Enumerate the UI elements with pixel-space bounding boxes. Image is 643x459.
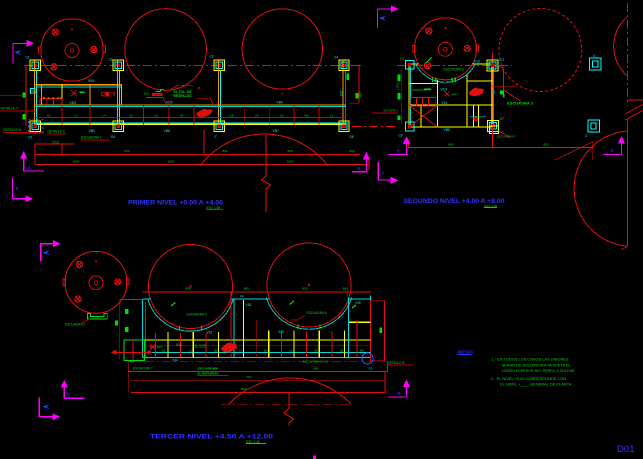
svg-text:B: B: [358, 166, 361, 171]
svg-text:VC3: VC3: [441, 87, 448, 91]
svg-text:B5: B5: [264, 348, 268, 352]
svg-text:C6: C6: [399, 134, 403, 138]
svg-text:C5: C5: [369, 366, 373, 370]
svg-text:EL NIVEL: EL NIVEL: [195, 343, 208, 347]
svg-text:ESCUADRA 2: ESCUADRA 2: [507, 102, 533, 106]
svg-text:B1: B1: [162, 348, 166, 352]
svg-text:B9: B9: [360, 348, 364, 352]
svg-text:ESCUADRA 4: ESCUADRA 4: [187, 313, 207, 317]
svg-text:C2: C2: [240, 294, 244, 298]
svg-text:C2: C2: [109, 58, 113, 62]
svg-text:C1: C1: [26, 56, 30, 60]
svg-text:V29: V29: [278, 330, 284, 334]
svg-text:PARRILLA: PARRILLA: [413, 88, 427, 92]
svg-text:L2: L2: [330, 113, 334, 117]
svg-text:C3: C3: [210, 55, 214, 59]
svg-text:1500: 1500: [240, 387, 247, 391]
svg-text:C3: C3: [500, 58, 504, 62]
svg-text:ESC 1:40: ESC 1:40: [246, 440, 260, 444]
svg-text:800: 800: [213, 366, 218, 370]
svg-text:L4: L4: [102, 113, 106, 117]
svg-text:ESCALERA 7: ESCALERA 7: [133, 367, 153, 371]
svg-text:D4: D4: [111, 135, 115, 139]
svg-text:RESPALDO: RESPALDO: [174, 94, 193, 98]
svg-text:VB4: VB4: [277, 101, 283, 105]
svg-text:A3: A3: [47, 113, 51, 117]
svg-text:VD5: VD5: [166, 101, 173, 105]
svg-text:V13: V13: [474, 60, 480, 64]
svg-text:VB8: VB8: [164, 129, 170, 133]
svg-text:ESCUADRA 6: ESCUADRA 6: [307, 311, 327, 315]
svg-text:L4: L4: [239, 348, 243, 352]
svg-text:2.- EL NIVEL +0.00 CORRESPOND: 2.- EL NIVEL +0.00 CORRESPONDE CON: [491, 377, 566, 381]
svg-text:800: 800: [124, 149, 129, 153]
svg-text:L6: L6: [155, 113, 159, 117]
svg-text:B: B: [28, 165, 31, 170]
svg-text:5: 5: [32, 90, 34, 94]
svg-text:DETALLE A: DETALLE A: [3, 128, 22, 132]
svg-text:V6: V6: [255, 113, 259, 117]
svg-text:EL REFUERZO: EL REFUERZO: [198, 372, 220, 376]
svg-text:L2: L2: [189, 348, 193, 352]
svg-text:800: 800: [448, 142, 453, 146]
svg-text:L5: L5: [129, 113, 133, 117]
svg-text:1600: 1600: [287, 159, 294, 163]
svg-text:ESCALERA 1: ESCALERA 1: [384, 109, 399, 113]
svg-text:C7: C7: [500, 117, 504, 121]
svg-text:V12: V12: [176, 343, 182, 347]
svg-text:L3: L3: [74, 113, 78, 117]
svg-text:SERAN DE SOLDADURA RESPETA EL: SERAN DE SOLDADURA RESPETA EL: [502, 363, 571, 367]
svg-text:LOGRO ESPESOR DEL PERFIL A SOL: LOGRO ESPESOR DEL PERFIL A SOLDAR: [502, 369, 575, 373]
svg-text:EL NIVEL +____ GENERAL DE PLA: EL NIVEL +____ GENERAL DE PLANTA: [500, 382, 572, 386]
svg-text:DETALLE C: DETALLE C: [48, 130, 66, 134]
svg-text:800: 800: [343, 287, 348, 291]
svg-text:ESCUADRA 3: ESCUADRA 3: [444, 67, 464, 71]
svg-text:F': F': [215, 135, 218, 139]
svg-text:ESCUADRA 7: ESCUADRA 7: [497, 134, 516, 138]
svg-text:800: 800: [244, 287, 249, 291]
svg-text:VB2: VB2: [89, 129, 96, 133]
svg-text:C4: C4: [334, 56, 338, 60]
svg-text:L9: L9: [280, 113, 284, 117]
svg-text:V39: V39: [355, 301, 361, 305]
svg-text:ESCUADRA 5 V29: ESCUADRA 5 V29: [303, 359, 329, 363]
svg-text:VB1: VB1: [88, 79, 95, 83]
svg-text:800: 800: [543, 142, 548, 146]
svg-text:DETALLE X: DETALLE X: [1, 106, 20, 110]
svg-text:1.- EN TODOS LOS CASOS LAS UN: 1.- EN TODOS LOS CASOS LAS UNIONES: [492, 358, 570, 362]
svg-text:A: A: [382, 171, 385, 176]
svg-text:ESC 1:50: ESC 1:50: [207, 206, 221, 210]
svg-text:800: 800: [302, 287, 307, 291]
svg-text:3/16: 3/16: [144, 91, 150, 95]
svg-text:ESC 1:50: ESC 1:50: [484, 204, 497, 208]
svg-text:800: 800: [313, 366, 318, 370]
svg-text:+NPT: +NPT: [451, 93, 459, 97]
svg-text:800: 800: [349, 149, 354, 153]
svg-text:1600: 1600: [168, 159, 175, 163]
svg-text:D01: D01: [617, 444, 635, 455]
svg-text:6: 6: [593, 54, 595, 58]
svg-text:B: B: [68, 392, 71, 397]
svg-text:800: 800: [185, 287, 190, 291]
svg-text:V15: V15: [492, 89, 496, 95]
svg-text:B: B: [397, 149, 400, 154]
svg-text:800: 800: [222, 149, 227, 153]
svg-text:NOTAS: NOTAS: [458, 349, 473, 354]
svg-text:1200: 1200: [396, 83, 400, 90]
svg-text:E: E: [16, 186, 19, 191]
svg-text:B7: B7: [315, 348, 319, 352]
svg-text:NPT: NPT: [157, 345, 163, 349]
svg-text:1600: 1600: [73, 159, 80, 163]
svg-text:V5: V5: [180, 113, 184, 117]
svg-text:ESCUADRA 1: ESCUADRA 1: [81, 136, 102, 140]
svg-text:VB5: VB5: [444, 128, 450, 132]
svg-text:B3: B3: [214, 348, 218, 352]
svg-text:700: 700: [246, 375, 251, 379]
svg-text:DETALLE B: DETALLE B: [387, 361, 404, 365]
svg-text:L8: L8: [340, 348, 344, 352]
svg-text:C5: C5: [28, 136, 32, 140]
svg-text:VB7: VB7: [273, 129, 280, 133]
svg-text:C2: C2: [400, 57, 404, 61]
svg-text:V17: V17: [340, 90, 344, 96]
svg-text:D8: D8: [350, 135, 354, 139]
svg-text:W1: W1: [304, 113, 309, 117]
svg-text:L8: L8: [230, 113, 234, 117]
svg-text:V34: V34: [172, 359, 178, 363]
svg-text:V14: V14: [442, 101, 448, 105]
svg-text:L6: L6: [290, 348, 294, 352]
svg-text:VD3: VD3: [70, 101, 77, 105]
svg-text:V19: V19: [207, 331, 213, 335]
svg-text:V18: V18: [246, 303, 252, 307]
svg-text:B': B': [611, 148, 615, 153]
svg-text:800: 800: [359, 92, 363, 97]
svg-text:800: 800: [287, 149, 292, 153]
svg-text:B: B: [398, 391, 401, 396]
svg-text:C': C': [585, 134, 588, 138]
